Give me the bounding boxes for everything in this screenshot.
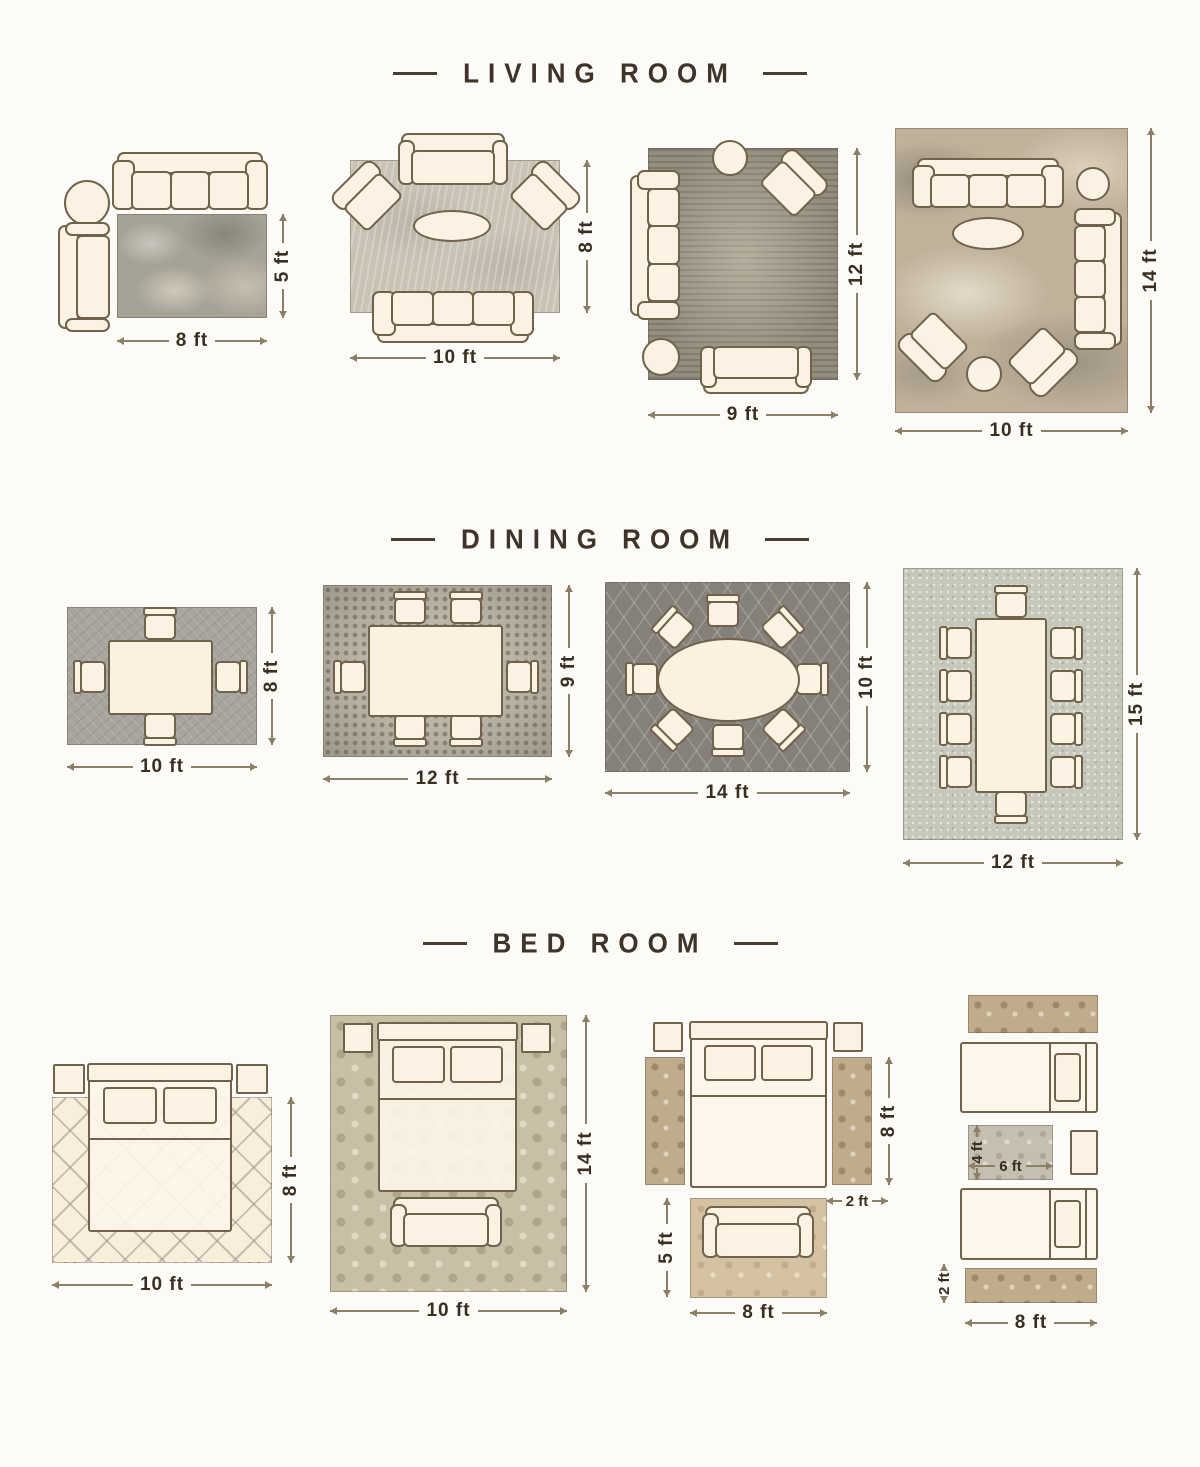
rug-size-guide: LIVING ROOM 8 ft 5 ft: [0, 0, 1200, 1467]
runner-height-dimension: 2 ft: [933, 1268, 955, 1303]
twin-bed-icon: [960, 1188, 1098, 1260]
runner-width-dimension: 8 ft: [965, 1312, 1097, 1334]
nightstand-icon: [1070, 1130, 1098, 1175]
runner-rug-icon: [968, 995, 1098, 1033]
dimension-label: 6 ft: [999, 1158, 1022, 1175]
bed-room-diagram-4: 4 ft 6 ft 2 ft 8 ft: [0, 0, 1200, 1467]
bed-room-section: BED ROOM 10 ft 8 ft: [0, 0, 1200, 1467]
dimension-label: 8 ft: [1015, 1312, 1048, 1334]
small-rug-width-dimension: 6 ft: [968, 1155, 1053, 1177]
twin-bed-icon: [960, 1042, 1098, 1113]
dimension-label: 2 ft: [936, 1273, 953, 1296]
runner-rug-icon: [965, 1268, 1097, 1303]
